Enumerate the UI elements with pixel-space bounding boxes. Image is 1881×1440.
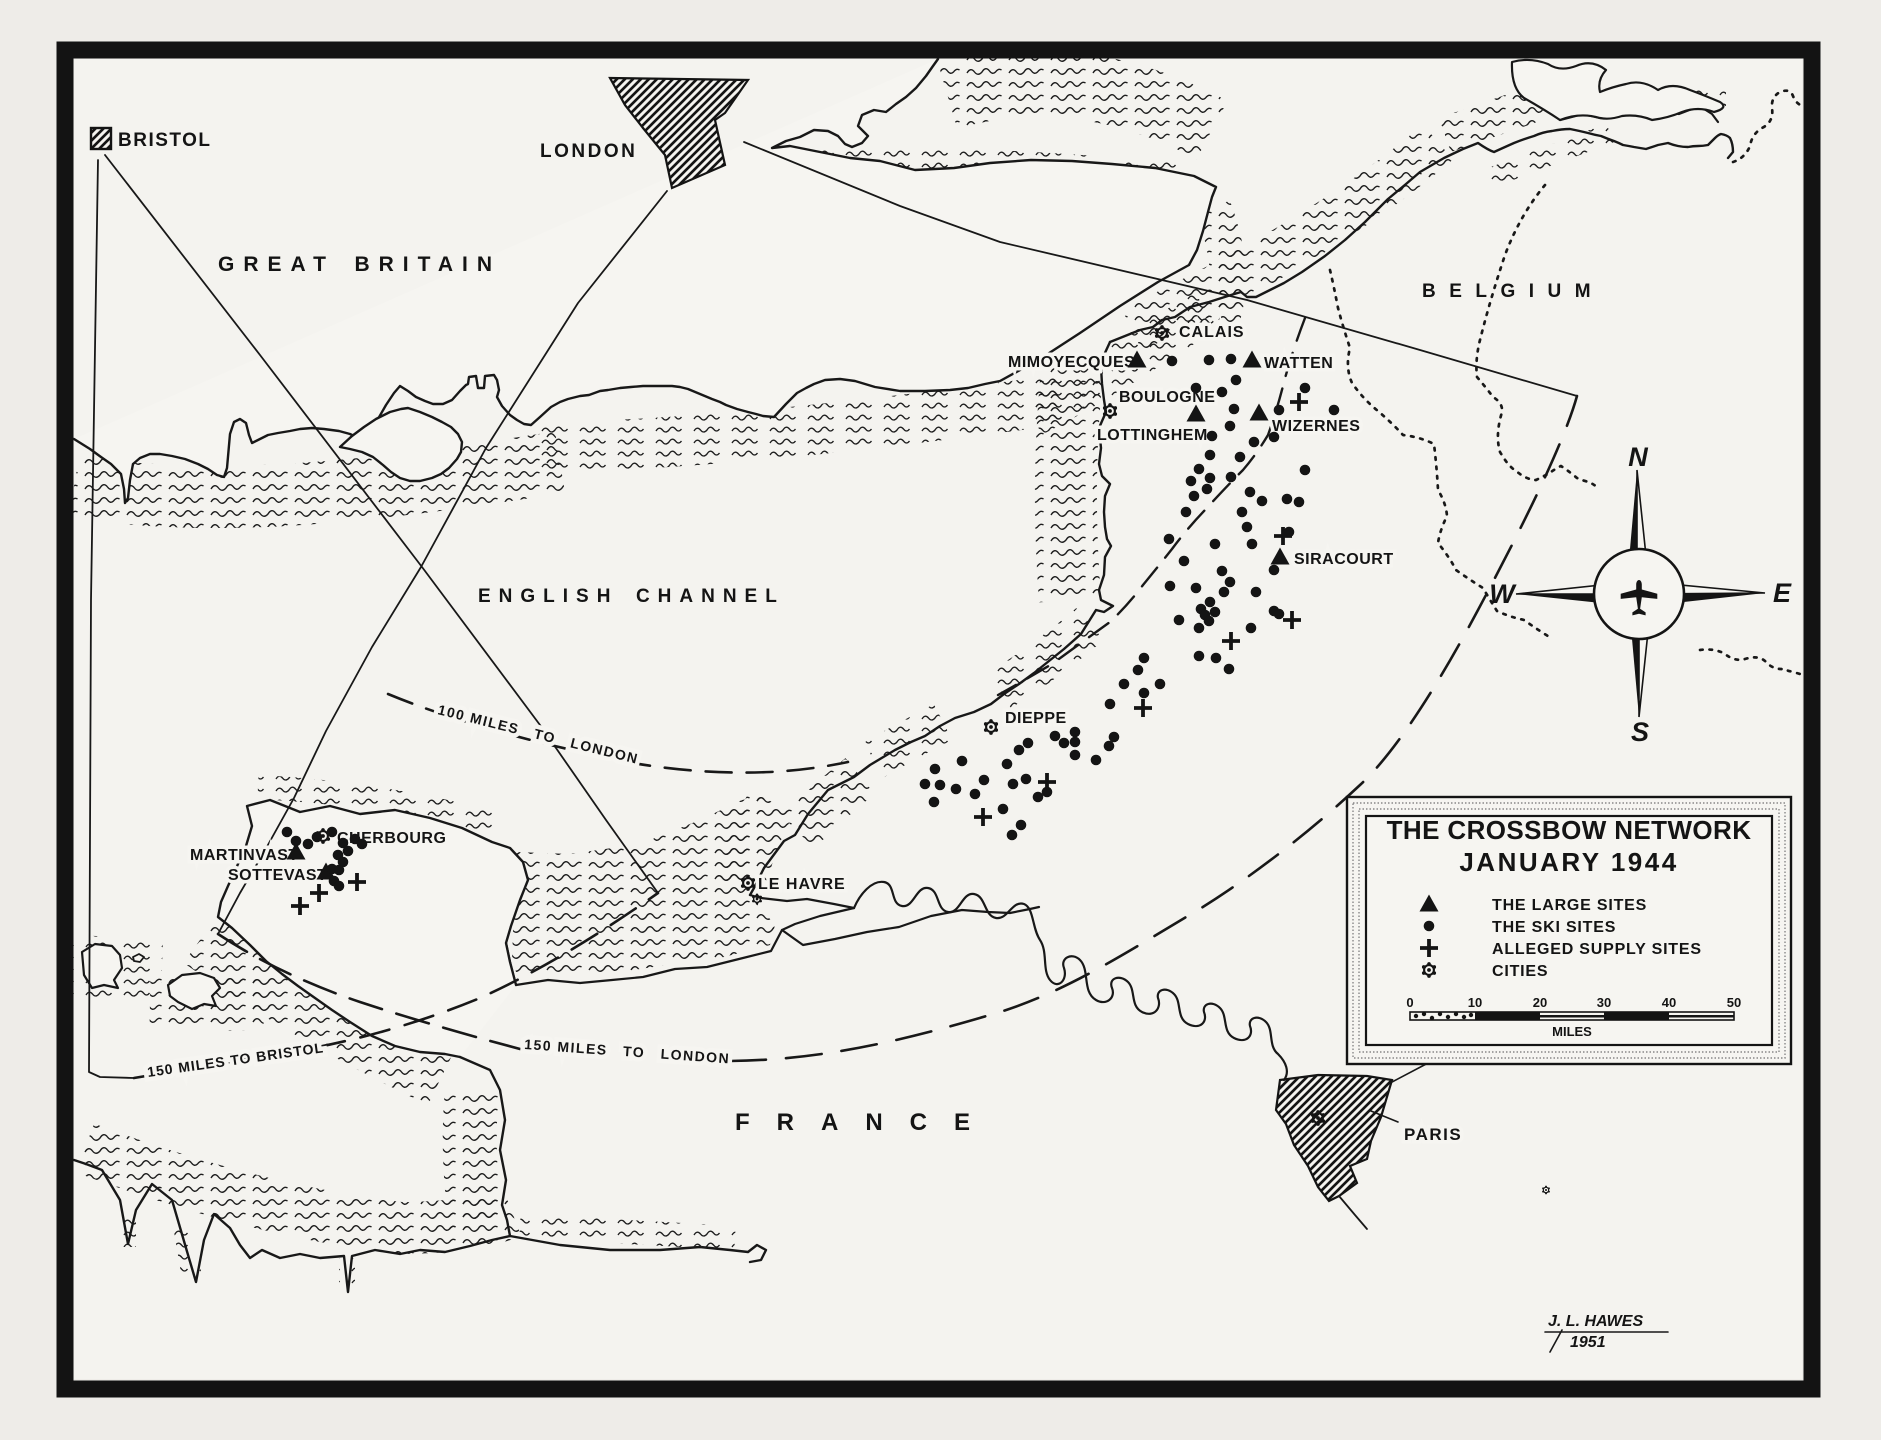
svg-text:1951: 1951 [1570, 1334, 1606, 1351]
svg-text:LOTTINGHEM: LOTTINGHEM [1097, 427, 1208, 444]
svg-text:S: S [1631, 717, 1649, 747]
svg-text:CITIES: CITIES [1492, 963, 1548, 980]
svg-text:40: 40 [1662, 995, 1676, 1010]
svg-text:BOULOGNE: BOULOGNE [1119, 389, 1215, 406]
svg-text:0: 0 [1406, 995, 1413, 1010]
svg-text:THE LARGE SITES: THE LARGE SITES [1492, 897, 1647, 914]
svg-text:20: 20 [1533, 995, 1547, 1010]
svg-text:FRANCE: FRANCE [735, 1109, 997, 1136]
svg-text:THE SKI SITES: THE SKI SITES [1492, 919, 1616, 936]
svg-text:ENGLISH CHANNEL: ENGLISH CHANNEL [478, 586, 785, 607]
svg-text:CALAIS: CALAIS [1179, 324, 1245, 341]
svg-text:SOTTEVAST: SOTTEVAST [228, 867, 327, 884]
svg-text:50: 50 [1727, 995, 1741, 1010]
svg-text:MARTINVAST: MARTINVAST [190, 847, 299, 864]
svg-text:E: E [1773, 578, 1792, 608]
svg-text:DIEPPE: DIEPPE [1005, 710, 1067, 727]
svg-text:PARIS: PARIS [1404, 1125, 1462, 1144]
svg-text:MIMOYECQUES: MIMOYECQUES [1008, 354, 1135, 371]
svg-text:30: 30 [1597, 995, 1611, 1010]
svg-text:SIRACOURT: SIRACOURT [1294, 551, 1394, 568]
svg-text:ALLEGED SUPPLY SITES: ALLEGED SUPPLY SITES [1492, 941, 1702, 958]
svg-text:LE HAVRE: LE HAVRE [758, 876, 846, 893]
svg-text:N: N [1628, 442, 1648, 472]
svg-text:MILES: MILES [1552, 1024, 1592, 1039]
svg-text:WATTEN: WATTEN [1264, 355, 1333, 372]
svg-text:WIZERNES: WIZERNES [1272, 418, 1360, 435]
svg-text:BELGIUM: BELGIUM [1422, 281, 1604, 302]
svg-text:GREAT BRITAIN: GREAT BRITAIN [218, 253, 501, 276]
svg-text:J. L. HAWES: J. L. HAWES [1548, 1313, 1643, 1330]
svg-text:BRISTOL: BRISTOL [118, 130, 212, 151]
svg-text:JANUARY 1944: JANUARY 1944 [1459, 847, 1678, 877]
svg-text:THE CROSSBOW NETWORK: THE CROSSBOW NETWORK [1387, 815, 1752, 845]
svg-text:LONDON: LONDON [540, 141, 637, 162]
svg-text:10: 10 [1468, 995, 1482, 1010]
svg-text:W: W [1489, 579, 1517, 609]
